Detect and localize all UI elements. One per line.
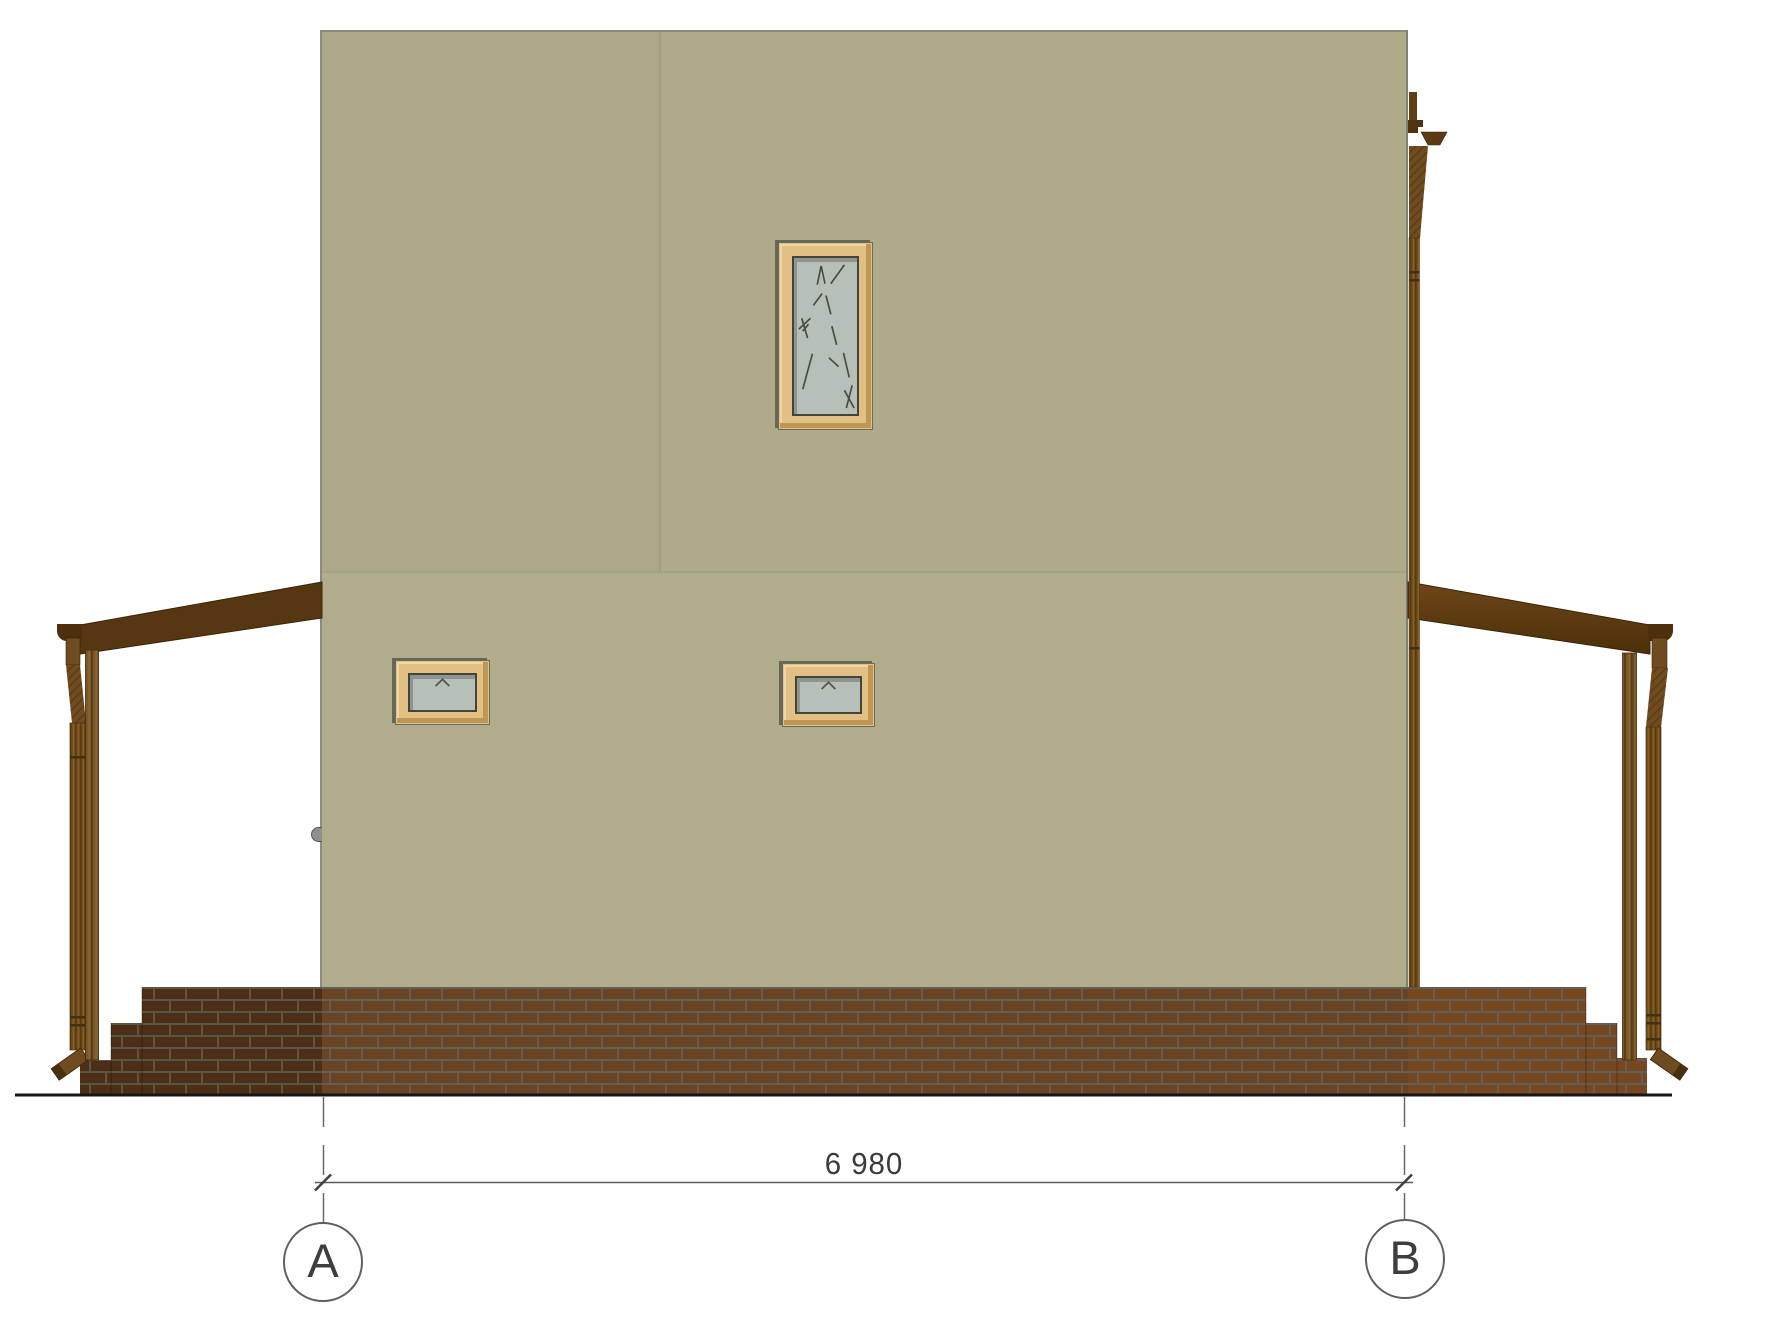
ground-line [15,1094,1672,1097]
brick-plinth [80,987,1647,1096]
porch-right-beam [1408,582,1650,654]
porch-right-post [1623,653,1637,1060]
downspout-right-outlet [1650,1048,1688,1080]
brick-base-right [1408,987,1647,1096]
rain-funnel [1421,132,1447,145]
wall-downspout-pipe [1409,238,1420,987]
brick-steps-left [80,987,322,1096]
porch-left-beam [80,582,322,654]
drawing-vector-layer [0,0,1772,1322]
elevation-drawing: 6 980 A B [0,0,1772,1322]
dimension-value: 6 980 [801,1146,926,1182]
porch-left-post [86,650,99,1060]
axis-marker-b: B [1365,1219,1445,1299]
axis-marker-a: A [283,1222,363,1302]
downspout-right-neck [1652,638,1667,668]
wall-downspout [1408,92,1447,987]
downspout-right-pipe [1646,727,1661,1050]
roof-pipe-stub [1409,92,1417,122]
downspout-left-pipe [70,723,85,1050]
gutter-stub [1408,120,1423,133]
brick-base-main [322,987,1408,1096]
downspout-left-neck [66,638,80,665]
